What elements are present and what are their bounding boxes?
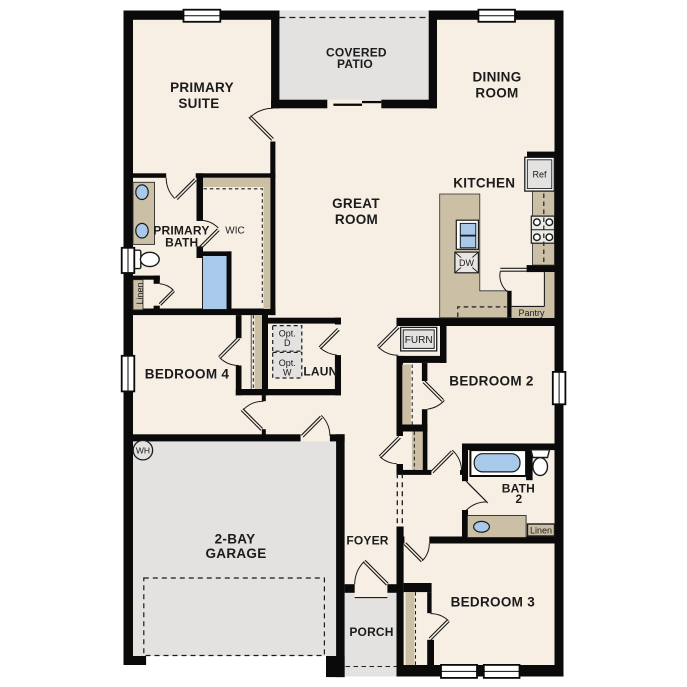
svg-text:D: D <box>284 338 291 348</box>
svg-text:BATH: BATH <box>165 236 198 250</box>
svg-text:FOYER: FOYER <box>346 533 388 547</box>
svg-text:LAUN: LAUN <box>303 364 337 378</box>
svg-text:Opt.: Opt. <box>279 329 296 339</box>
svg-text:GARAGE: GARAGE <box>205 546 266 561</box>
svg-text:ROOM: ROOM <box>335 212 378 227</box>
svg-text:Ref: Ref <box>532 170 547 180</box>
svg-text:PORCH: PORCH <box>349 625 393 639</box>
svg-text:Opt.: Opt. <box>279 358 296 368</box>
svg-text:Linen: Linen <box>530 525 552 535</box>
svg-text:GREAT: GREAT <box>332 196 380 211</box>
svg-text:2: 2 <box>515 492 522 506</box>
svg-text:PRIMARY: PRIMARY <box>170 80 234 95</box>
svg-text:SUITE: SUITE <box>178 96 219 111</box>
svg-text:WIC: WIC <box>225 226 244 237</box>
svg-text:ROOM: ROOM <box>475 86 518 101</box>
svg-text:DW: DW <box>459 258 474 268</box>
svg-text:BEDROOM 2: BEDROOM 2 <box>449 374 533 389</box>
svg-text:KITCHEN: KITCHEN <box>453 176 515 191</box>
svg-text:2-BAY: 2-BAY <box>215 531 256 546</box>
svg-text:BEDROOM 3: BEDROOM 3 <box>451 595 536 610</box>
svg-text:WH: WH <box>136 445 150 455</box>
svg-text:FURN: FURN <box>405 335 433 346</box>
svg-text:DINING: DINING <box>472 70 521 85</box>
svg-text:Linen: Linen <box>135 282 145 304</box>
svg-text:BEDROOM 4: BEDROOM 4 <box>145 367 230 382</box>
svg-text:W: W <box>283 368 292 378</box>
svg-text:Pantry: Pantry <box>518 308 545 318</box>
svg-text:PATIO: PATIO <box>337 57 373 71</box>
